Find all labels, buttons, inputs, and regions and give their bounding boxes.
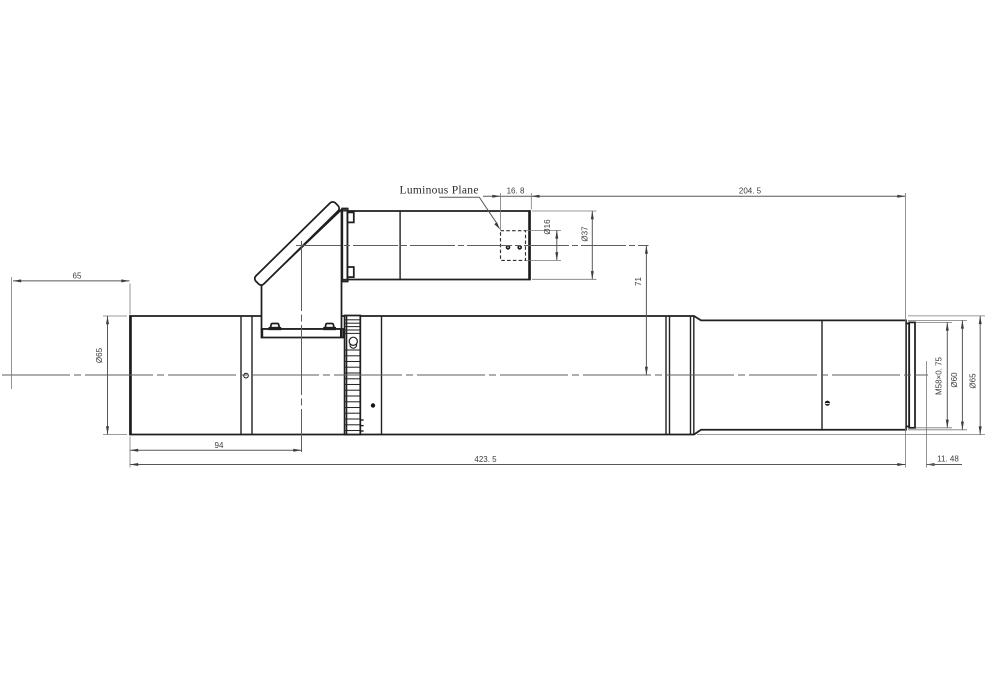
svg-text:Ø60: Ø60	[950, 372, 959, 388]
svg-text:65: 65	[73, 271, 82, 280]
svg-text:Ø65: Ø65	[968, 373, 977, 389]
svg-text:71: 71	[634, 277, 643, 286]
svg-text:16. 8: 16. 8	[507, 187, 525, 196]
svg-text:Ø16: Ø16	[543, 219, 552, 235]
svg-text:204. 5: 204. 5	[739, 187, 762, 196]
svg-text:94: 94	[215, 441, 224, 450]
svg-text:423. 5: 423. 5	[474, 455, 497, 464]
svg-text:11. 48: 11. 48	[937, 454, 959, 463]
svg-text:Ø65: Ø65	[95, 347, 104, 363]
svg-text:Ø37: Ø37	[580, 226, 589, 242]
svg-text:M58×0. 75: M58×0. 75	[935, 356, 944, 395]
svg-text:Luminous Plane: Luminous Plane	[400, 185, 479, 197]
